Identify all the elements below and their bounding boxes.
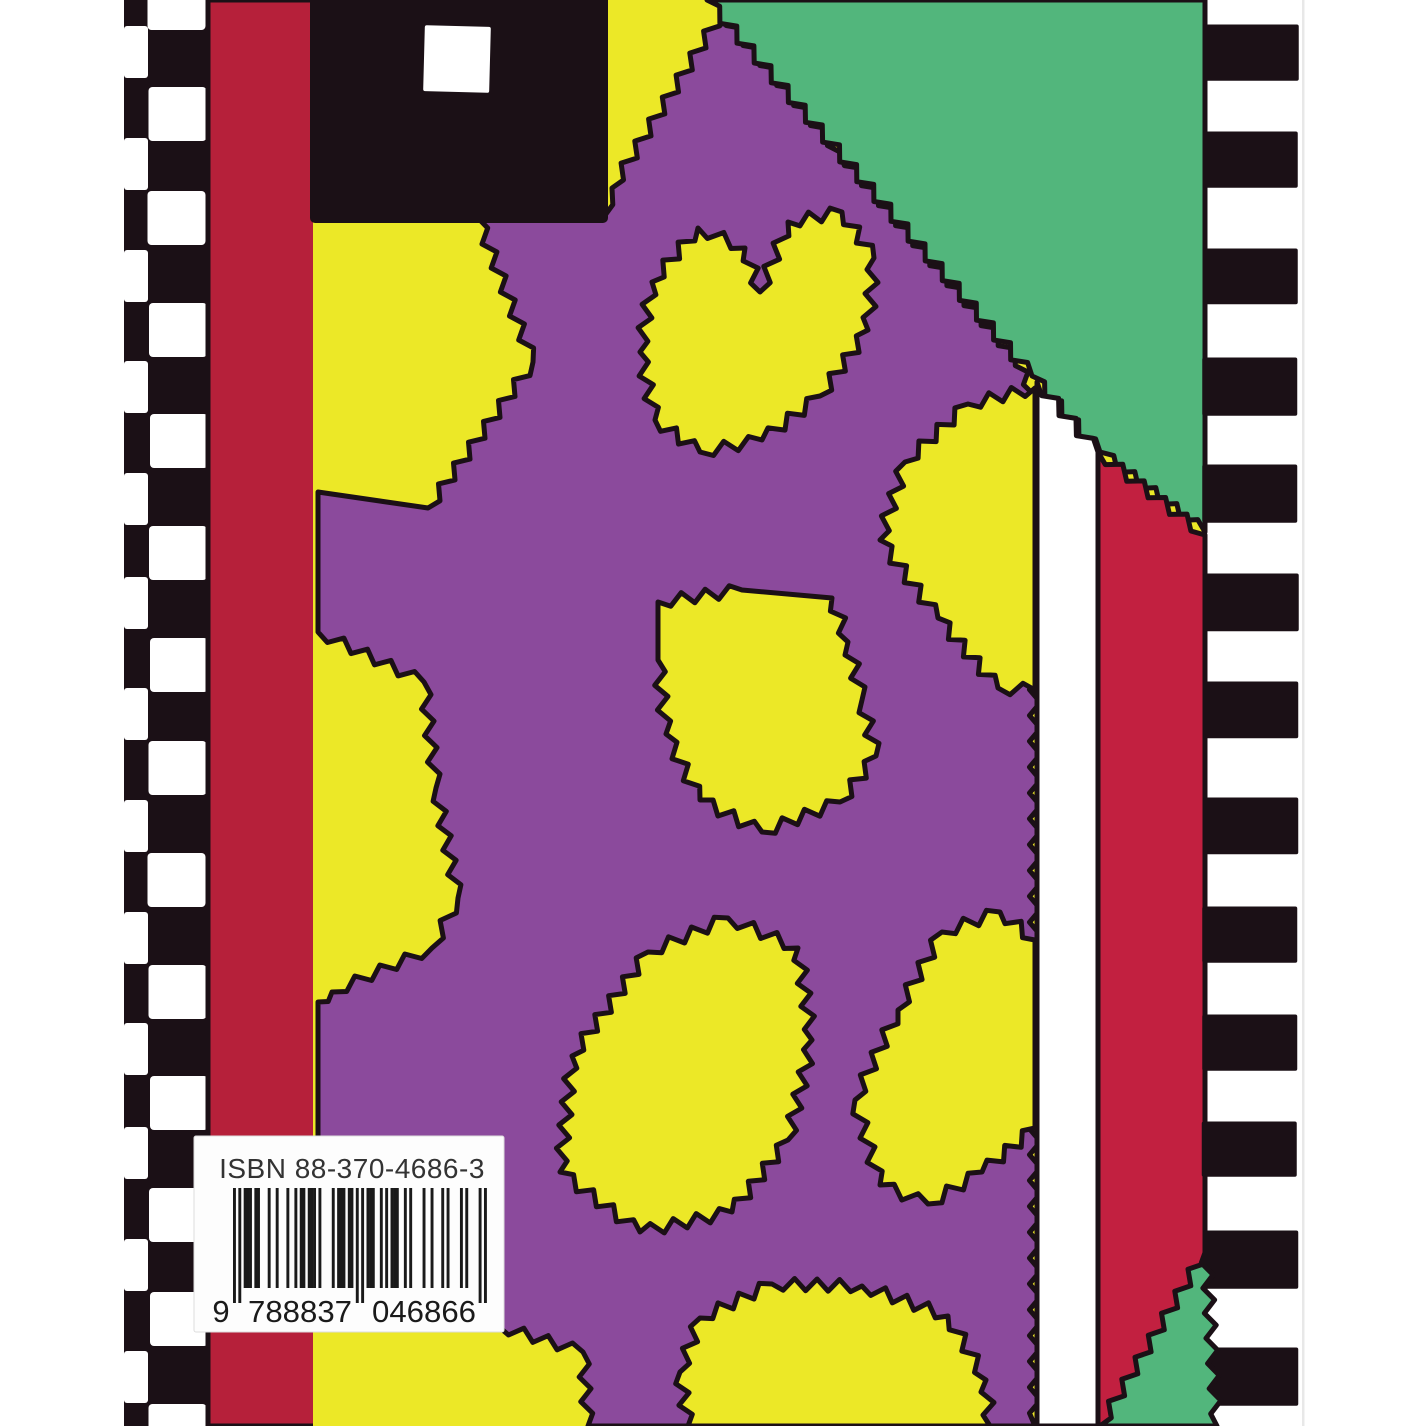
barcode-bar <box>246 1188 249 1288</box>
border-stripe-black <box>1203 798 1298 855</box>
border-stripe-black <box>1204 25 1299 81</box>
checker-cell-white <box>124 800 148 852</box>
book-back-cover-photo: ISBN 88-370-4686-3 9 788837 046866 <box>0 0 1426 1426</box>
cover-artwork: ISBN 88-370-4686-3 9 788837 046866 <box>0 0 1426 1426</box>
checker-cell-white <box>148 853 206 907</box>
barcode-bar <box>423 1188 426 1288</box>
barcode-bar <box>393 1188 396 1288</box>
barcode-bar <box>484 1188 487 1303</box>
isbn-number-text: ISBN 88-370-4686-3 <box>219 1153 485 1184</box>
barcode-bar <box>257 1188 260 1288</box>
border-stripe-black <box>1202 465 1297 523</box>
barcode-bar <box>447 1188 450 1288</box>
barcode-bar <box>356 1188 359 1303</box>
barcode-bar <box>372 1188 375 1288</box>
border-stripe-black <box>1202 1015 1297 1071</box>
barcode-bar <box>244 1188 247 1288</box>
checker-cell-white <box>149 303 207 357</box>
checker-cell-white <box>149 526 207 580</box>
white-band <box>1037 382 1098 1426</box>
checker-cell-white <box>124 1239 148 1291</box>
barcode-bar <box>465 1188 468 1288</box>
checker-cell-white <box>124 473 148 525</box>
checker-cell-white <box>148 191 206 245</box>
barcode-bar <box>233 1188 236 1303</box>
checker-cell-white <box>124 250 148 302</box>
barcode-bar <box>441 1188 444 1288</box>
checker-cell-white <box>124 1023 148 1075</box>
barcode-digits-right: 046866 <box>372 1294 476 1329</box>
barcode-bar <box>431 1188 434 1288</box>
barcode-bar <box>268 1188 271 1288</box>
barcode-bar <box>308 1188 311 1288</box>
barcode-bar <box>337 1188 340 1288</box>
border-stripe-black <box>1202 907 1297 963</box>
border-stripe-black <box>1203 249 1298 305</box>
checker-cell-white <box>124 1127 148 1179</box>
checker-cell-white <box>149 741 207 795</box>
barcode-bar <box>302 1188 305 1288</box>
border-stripe-black <box>1203 132 1298 188</box>
barcode-bar <box>385 1188 388 1288</box>
barcode-bar <box>391 1188 394 1288</box>
border-stripe-black <box>1203 682 1298 739</box>
checker-cell-white <box>124 577 148 629</box>
barcode-bar <box>332 1188 335 1288</box>
checker-cell-white <box>124 26 148 78</box>
checker-cell-white <box>124 361 148 413</box>
barcode-bar <box>340 1188 343 1288</box>
barcode-bar <box>348 1188 351 1288</box>
barcode-bar <box>286 1188 289 1288</box>
barcode-bar <box>238 1188 241 1303</box>
barcode-bar <box>350 1188 353 1288</box>
barcode-bar <box>254 1188 257 1288</box>
checker-cell-white <box>148 0 206 30</box>
barcode-bar <box>380 1188 383 1288</box>
checker-cell-white <box>150 414 208 468</box>
barcode-bar <box>361 1188 364 1303</box>
border-stripe-black <box>1202 358 1297 416</box>
border-stripe-black <box>1204 574 1299 632</box>
barcode-bar <box>367 1188 370 1288</box>
barcode-bar <box>342 1188 345 1288</box>
barcode-digit-first: 9 <box>212 1294 229 1329</box>
checker-cell-white <box>149 965 207 1019</box>
barcode-bar <box>300 1188 303 1288</box>
barcode-bar <box>276 1188 279 1288</box>
barcode-bar <box>404 1188 407 1288</box>
checker-cell-white <box>124 138 148 190</box>
checker-cell-white <box>124 1351 148 1403</box>
isbn-barcode-label: ISBN 88-370-4686-3 9 788837 046866 <box>194 1136 504 1332</box>
checker-cell-white <box>150 1076 208 1130</box>
page-edge-line <box>1302 0 1305 1426</box>
barcode-bar <box>318 1188 321 1288</box>
checker-cell-white <box>124 688 148 740</box>
checker-cell-white <box>149 87 207 141</box>
barcode-bar <box>369 1188 372 1288</box>
striped-border-right <box>1202 25 1299 1406</box>
barcode-bar <box>460 1188 463 1288</box>
barcode-bar <box>313 1188 316 1288</box>
border-stripe-black <box>1203 1231 1298 1289</box>
white-inset-square <box>423 25 491 93</box>
barcode-bar <box>310 1188 313 1288</box>
barcode-bar <box>409 1188 412 1288</box>
checker-cell-white <box>149 1404 207 1426</box>
barcode-bar <box>479 1188 482 1303</box>
barcode-bar <box>396 1188 399 1288</box>
barcode-digits-left: 788837 <box>248 1294 352 1329</box>
border-stripe-black <box>1202 1122 1297 1177</box>
barcode-bar <box>249 1188 252 1288</box>
barcode-bar <box>294 1188 297 1288</box>
checker-cell-white <box>150 638 208 692</box>
checker-cell-white <box>124 912 148 964</box>
